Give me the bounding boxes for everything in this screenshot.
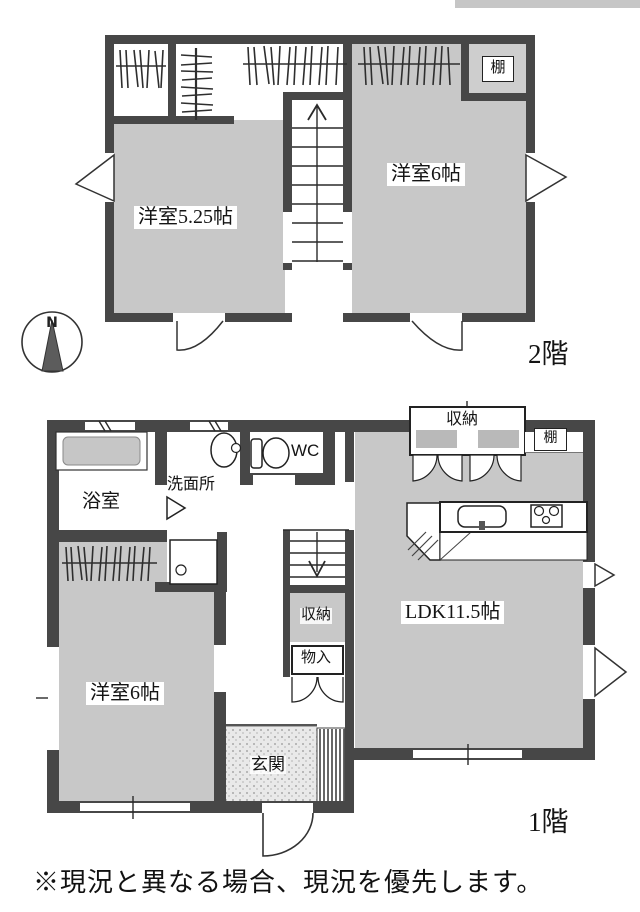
- label-room-2f-west: 洋室5.25帖: [134, 206, 237, 229]
- disclaimer-note: ※現況と異なる場合、現況を優先します。: [33, 862, 543, 899]
- floor1-plan: [36, 401, 626, 856]
- label-floor-2f: 2階: [528, 340, 569, 368]
- label-ldk-storage: 収納: [446, 412, 478, 429]
- label-bathroom: 浴室: [82, 492, 120, 512]
- washing-machine-icon: [170, 540, 217, 584]
- floorplan-page: N: [0, 0, 640, 912]
- compass: N: [22, 312, 82, 372]
- bathtub-icon: [56, 432, 147, 470]
- floor2-plan: [76, 35, 566, 350]
- label-ldk: LDK11.5帖: [401, 601, 504, 624]
- room-ldk-fill: [355, 432, 583, 748]
- label-stair-storage: 収納: [300, 608, 332, 624]
- label-mononyu: 物入: [301, 651, 331, 667]
- label-shelf-2f: 棚: [482, 56, 514, 82]
- label-room-2f-east: 洋室6帖: [387, 163, 465, 186]
- faucet-icon: [479, 521, 485, 530]
- window-flaps-1f: [595, 564, 626, 696]
- stove-icon: [531, 505, 562, 527]
- window-arcs-2f: [177, 321, 462, 350]
- label-washroom: 洗面所: [167, 477, 215, 494]
- floorplan-drawing: N: [0, 0, 640, 912]
- label-entrance: 玄関: [250, 756, 286, 774]
- compass-north-label: N: [46, 315, 58, 331]
- label-room-1f-west: 洋室6帖: [86, 682, 164, 705]
- kitchen-counter: [407, 502, 587, 560]
- label-floor-1f: 1階: [528, 808, 569, 836]
- label-wc: WC: [291, 442, 319, 460]
- front-door-arc: [263, 813, 313, 856]
- entrance-step-stripes: [317, 728, 345, 806]
- label-shelf-1f: 棚: [534, 428, 567, 451]
- toilet-icon: [251, 438, 289, 468]
